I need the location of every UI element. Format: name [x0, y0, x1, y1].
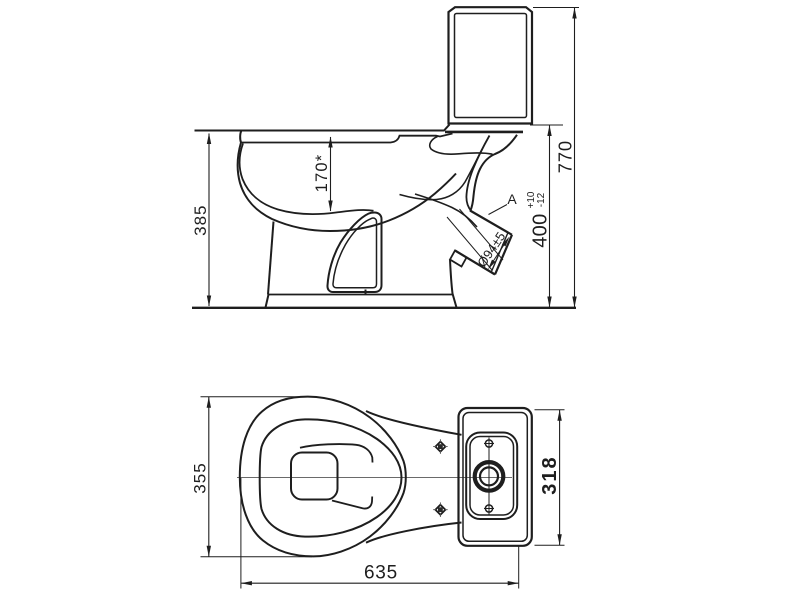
svg-text:318: 318: [539, 455, 561, 494]
svg-text:400: 400: [530, 213, 552, 247]
svg-text:635: 635: [364, 563, 398, 584]
svg-text:385: 385: [191, 205, 210, 236]
svg-text:170*: 170*: [313, 154, 331, 193]
svg-text:-12: -12: [536, 192, 547, 207]
svg-text:355: 355: [190, 462, 209, 493]
svg-text:A: A: [507, 191, 517, 207]
svg-text:770: 770: [554, 140, 575, 173]
